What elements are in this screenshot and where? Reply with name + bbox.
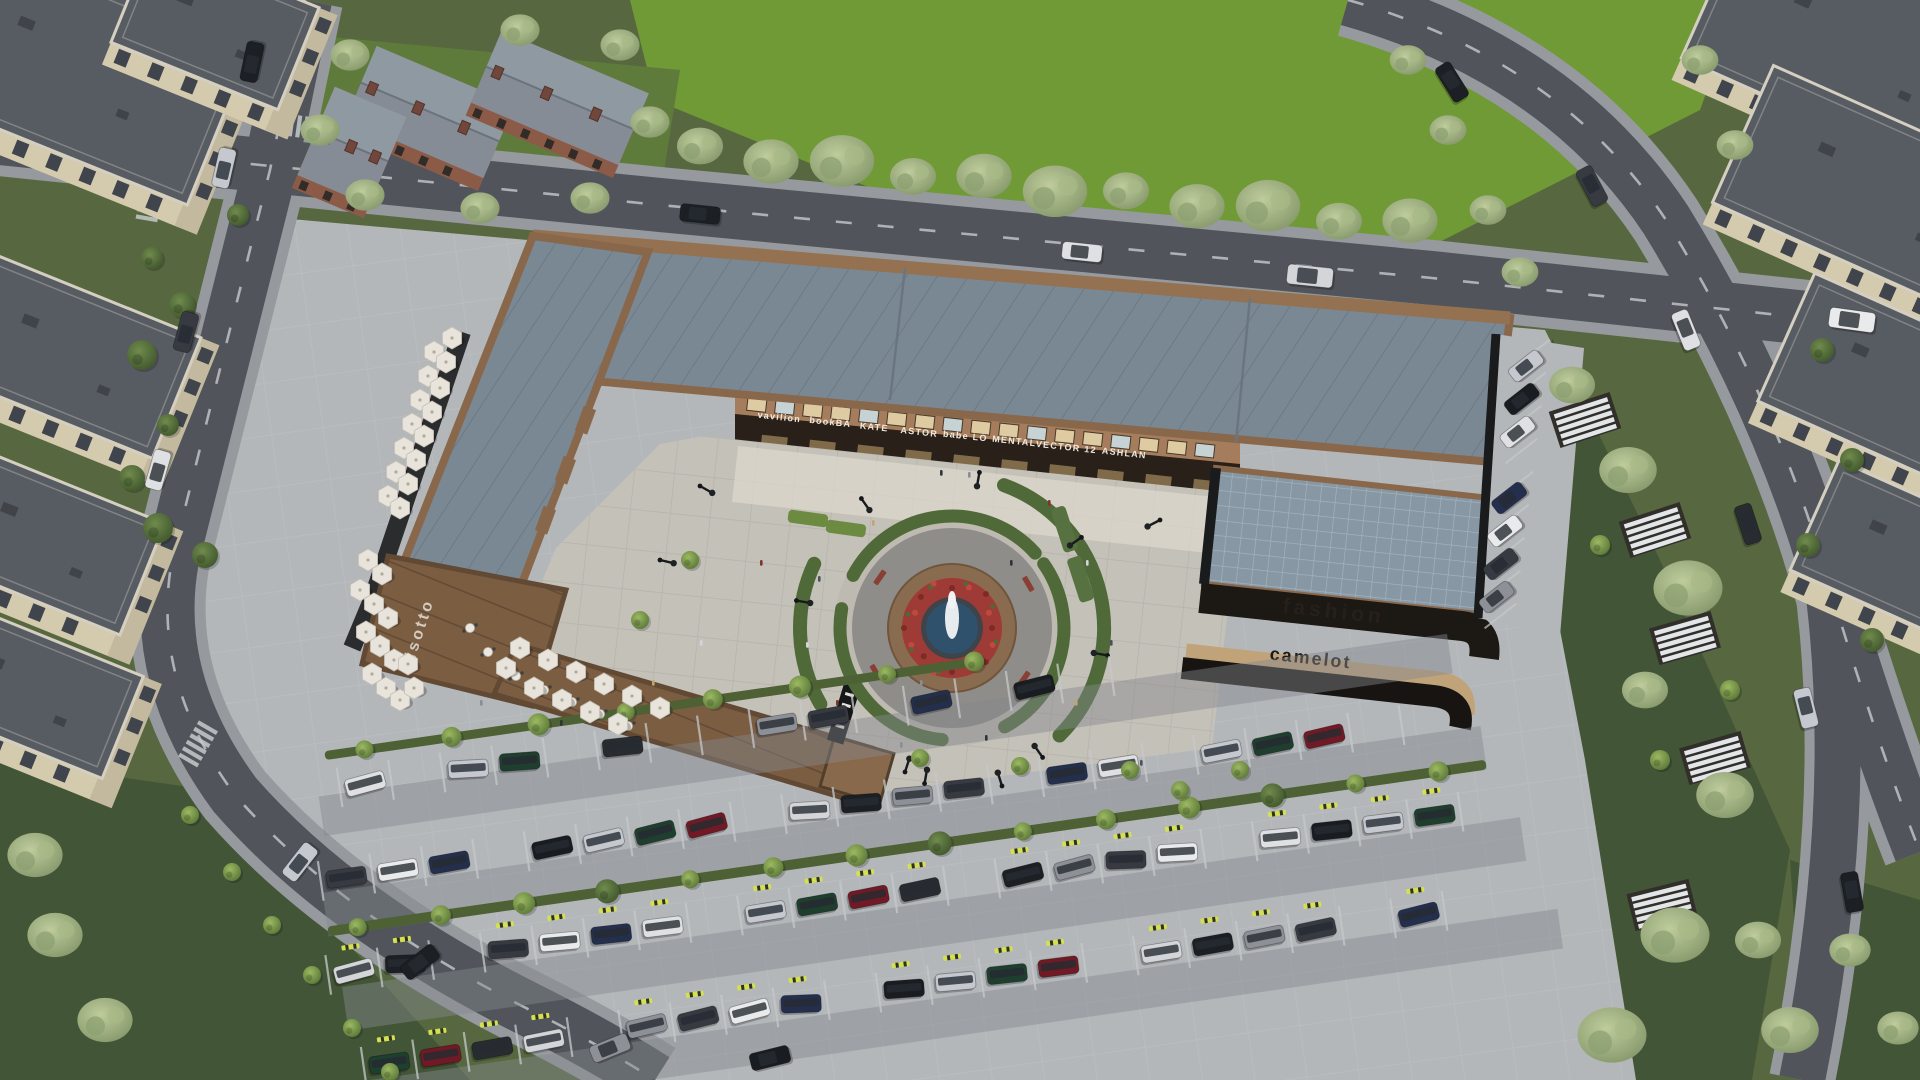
aerial-architectural-render: risotto fashion camelot vavilion bookBA … [0, 0, 1920, 1080]
dusk-overlay [0, 0, 1920, 1080]
scene-svg: risotto fashion camelot vavilion bookBA … [0, 0, 1920, 1080]
